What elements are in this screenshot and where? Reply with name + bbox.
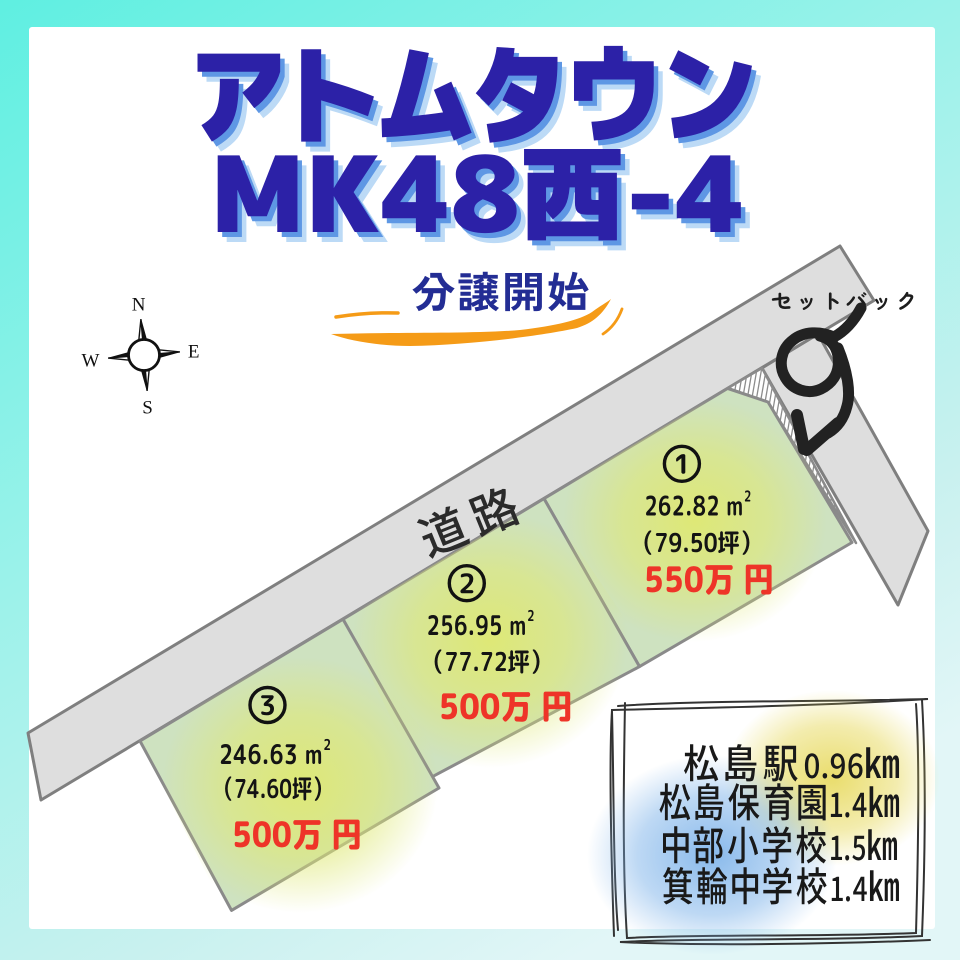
svg-text:S: S	[142, 398, 153, 419]
svg-text:W: W	[82, 351, 100, 372]
svg-text:N: N	[132, 295, 146, 316]
svg-text:E: E	[188, 341, 200, 362]
